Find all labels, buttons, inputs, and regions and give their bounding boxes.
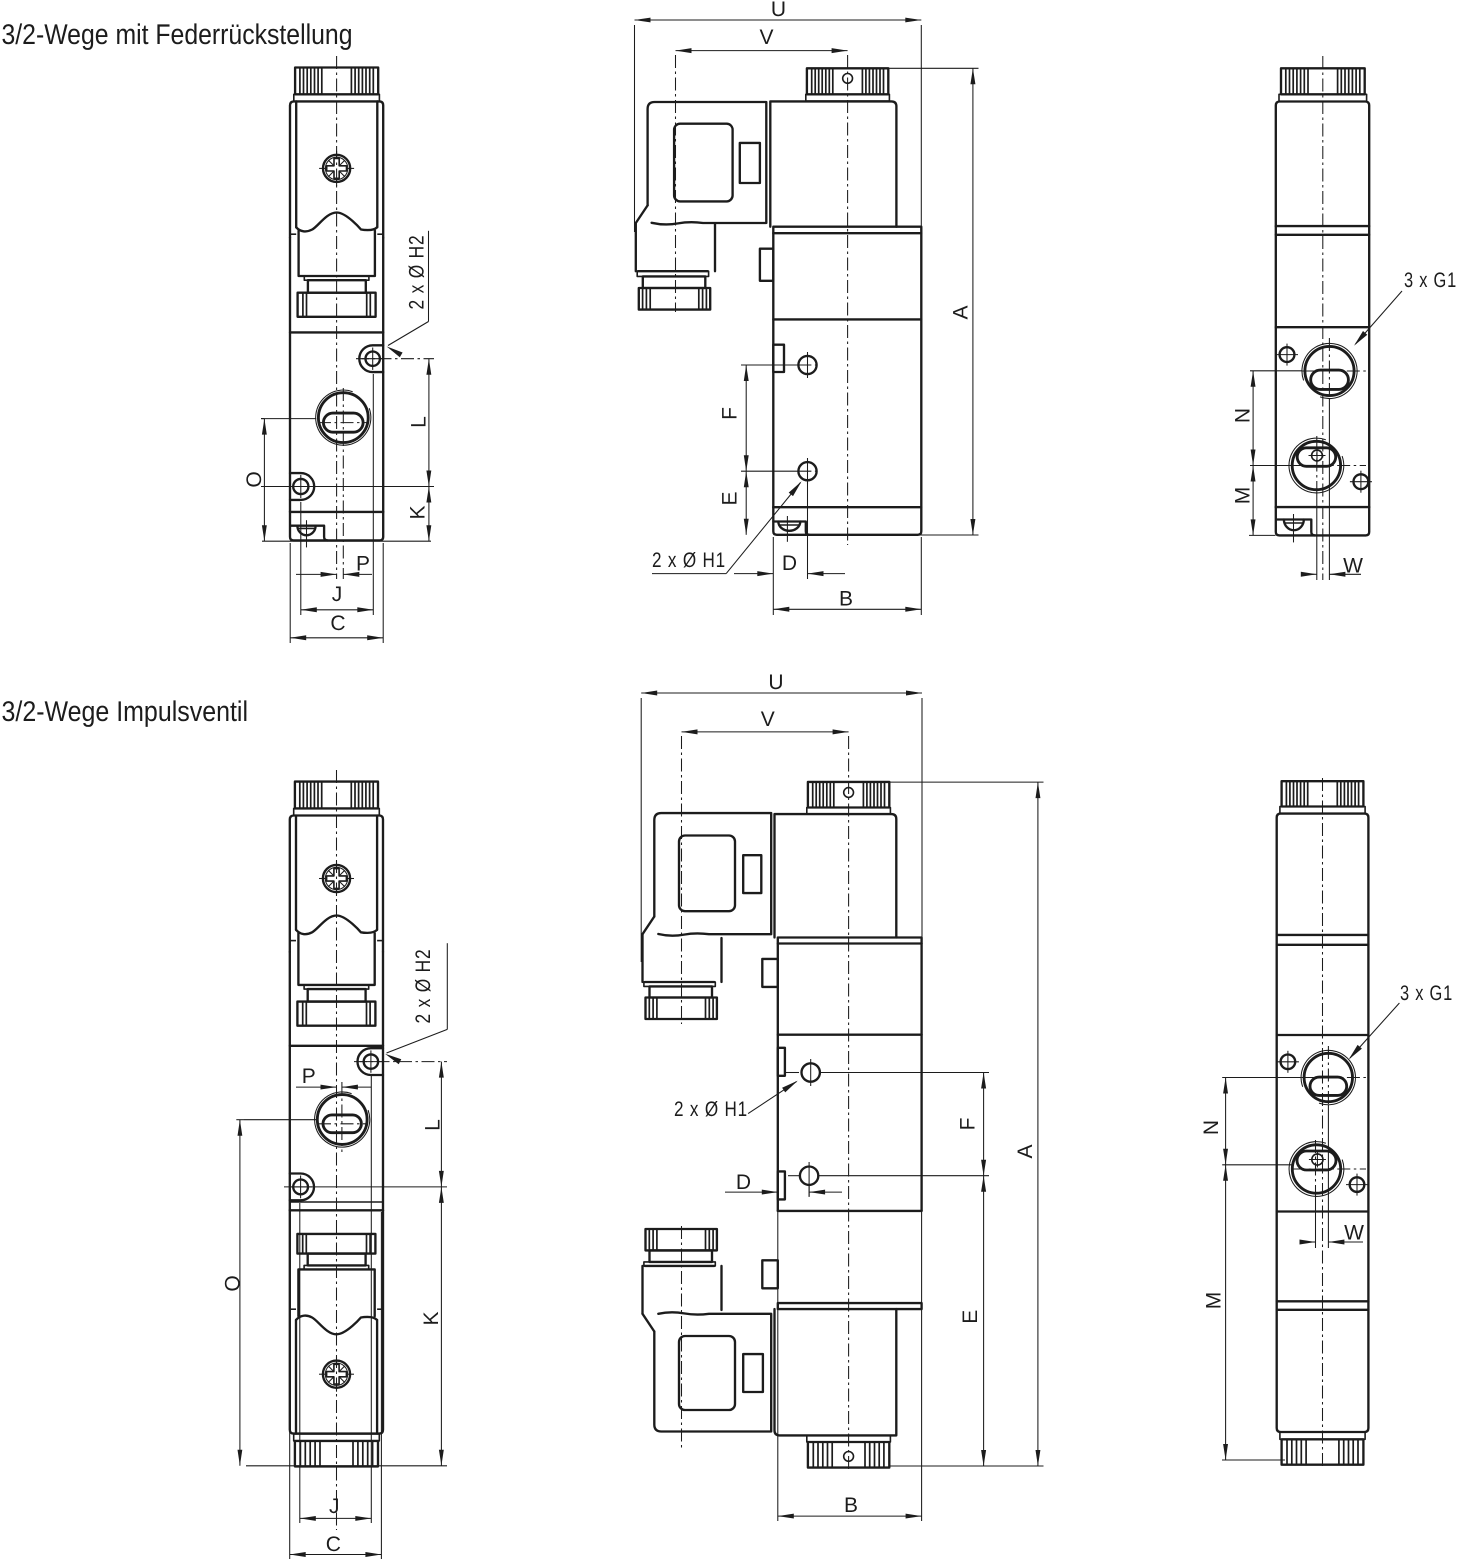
svg-text:P: P [356, 553, 371, 576]
svg-text:A: A [1014, 1143, 1037, 1158]
svg-text:3 x G1: 3 x G1 [1400, 982, 1453, 1005]
svg-text:F: F [719, 406, 742, 420]
svg-text:N: N [1200, 1119, 1223, 1135]
svg-text:2 x Ø H2: 2 x Ø H2 [412, 949, 435, 1024]
svg-text:U: U [768, 671, 784, 694]
svg-text:F: F [957, 1117, 980, 1131]
svg-text:C: C [330, 612, 346, 635]
svg-text:2 x Ø H2: 2 x Ø H2 [406, 235, 429, 310]
svg-text:2 x Ø H1: 2 x Ø H1 [674, 1098, 748, 1121]
svg-text:K: K [420, 1310, 443, 1325]
svg-text:K: K [407, 504, 430, 519]
svg-text:V: V [759, 26, 774, 49]
svg-text:3/2-Wege Impulsventil: 3/2-Wege Impulsventil [2, 696, 249, 728]
svg-text:P: P [302, 1065, 317, 1088]
svg-text:D: D [736, 1171, 752, 1194]
svg-text:J: J [329, 1495, 341, 1518]
svg-text:J: J [332, 583, 344, 606]
svg-text:V: V [761, 708, 776, 731]
svg-text:O: O [243, 470, 266, 487]
svg-text:L: L [421, 1118, 444, 1131]
svg-text:A: A [949, 304, 972, 319]
svg-text:N: N [1232, 407, 1255, 423]
svg-text:U: U [771, 0, 787, 21]
svg-text:D: D [782, 552, 798, 575]
svg-text:B: B [844, 1494, 859, 1517]
svg-text:M: M [1232, 486, 1255, 505]
svg-text:2 x Ø H1: 2 x Ø H1 [652, 549, 726, 572]
svg-text:B: B [839, 588, 854, 611]
svg-text:E: E [959, 1309, 982, 1324]
svg-text:L: L [407, 415, 430, 428]
svg-text:M: M [1202, 1291, 1225, 1310]
svg-text:W: W [1344, 1221, 1365, 1244]
svg-text:W: W [1343, 555, 1364, 578]
svg-text:C: C [326, 1533, 342, 1556]
svg-text:O: O [221, 1274, 244, 1291]
svg-text:E: E [719, 490, 742, 505]
svg-text:3 x G1: 3 x G1 [1404, 269, 1457, 292]
svg-text:3/2-Wege mit Federrückstellung: 3/2-Wege mit Federrückstellung [2, 19, 353, 51]
